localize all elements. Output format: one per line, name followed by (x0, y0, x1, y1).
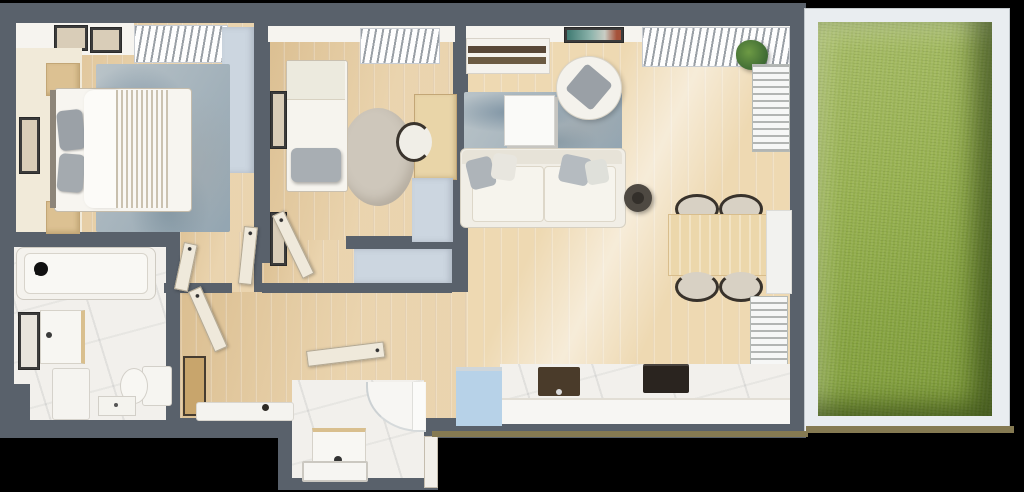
washing-machine (52, 368, 90, 420)
living-window-blinds (642, 27, 790, 67)
tv-unit-stripe-2 (468, 57, 546, 64)
bedroom2-window-blinds (360, 28, 440, 64)
ground-edge-line-center (432, 431, 808, 437)
radiator-top (752, 64, 790, 152)
bedroom1-wall-art (19, 117, 40, 174)
bedroom2-cabinet (412, 178, 453, 242)
shelf-picture-frame-2 (90, 27, 122, 53)
bathtub-faucet (34, 262, 48, 276)
wall-under-niche (354, 283, 452, 293)
desk-chair (396, 122, 432, 162)
bed-pillow-gray-2 (56, 153, 85, 193)
shower-room-door-leaf (424, 436, 438, 488)
ground-edge-line-right (806, 426, 1014, 433)
bedroom1-window-blinds (134, 25, 228, 63)
vanity-faucet (46, 332, 52, 338)
bedroom2-wall-frame-1 (270, 91, 287, 149)
tv-unit (466, 38, 550, 74)
shower-ledge (412, 382, 425, 430)
wall-hallway-top-right (262, 283, 354, 293)
living-wall-art (564, 27, 624, 43)
kitchen-counter-face (500, 398, 790, 424)
coffee-table (504, 95, 555, 146)
niche-cabinet (354, 249, 452, 283)
doormat-handle-object (262, 404, 269, 411)
bed-duvet (84, 90, 116, 208)
dining-chair-bottom-1 (675, 272, 719, 302)
bathroom-corner-notch (0, 384, 30, 438)
bathroom-mirror (18, 312, 40, 370)
side-table-top (632, 192, 644, 204)
wall-console (766, 210, 792, 294)
single-bed-pillow (291, 148, 341, 182)
sofa-pillow-2 (490, 152, 517, 181)
garden-lawn (818, 22, 992, 416)
wall-bedroom1-bedroom2 (254, 3, 270, 263)
floor-plan-scene (0, 0, 1024, 492)
bed-headboard (50, 90, 56, 208)
shower-room-bath-mat (302, 461, 368, 482)
entrance-doormat (196, 402, 294, 421)
wall-under-bedroom1 (0, 232, 166, 247)
bed-fringed-throw (116, 90, 168, 208)
kitchen-blue-cabinet (456, 367, 502, 426)
dining-table (668, 214, 774, 276)
tv-unit-stripe-1 (468, 46, 546, 53)
storage-box-button (114, 403, 118, 407)
cooktop (643, 364, 689, 393)
sofa-pillow-4 (584, 158, 610, 185)
bed-pillow-gray-1 (56, 109, 86, 151)
sink-faucet (556, 389, 562, 395)
single-bed-fold (287, 61, 345, 100)
